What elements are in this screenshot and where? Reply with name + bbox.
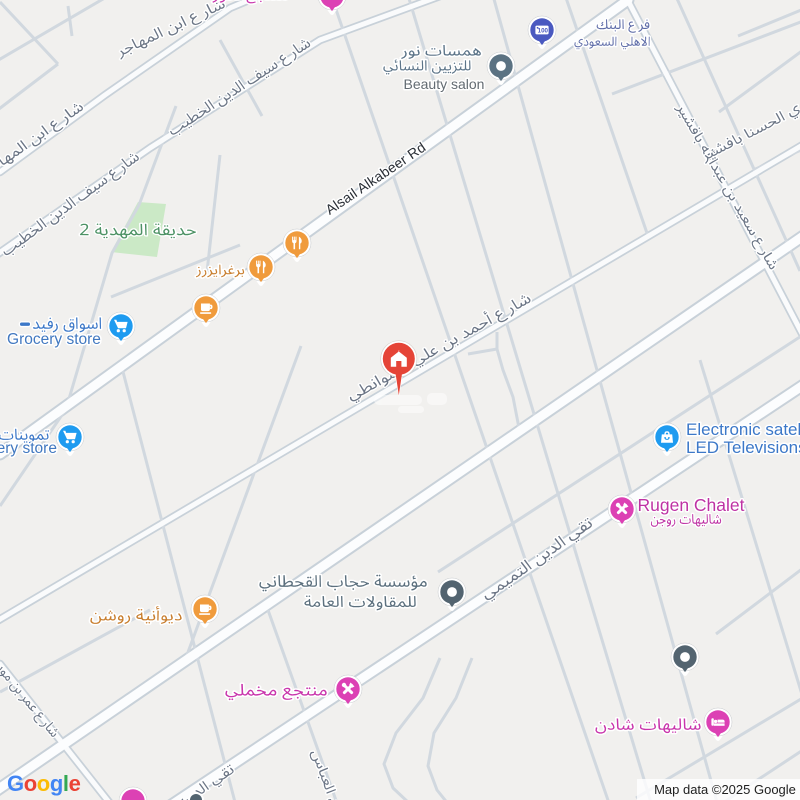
svg-text:Grocery store: Grocery store (7, 331, 101, 348)
svg-text:Map data ©2025 Google: Map data ©2025 Google (654, 782, 796, 797)
svg-text:100: 100 (538, 28, 549, 35)
svg-text:Grocery store: Grocery store (0, 440, 57, 457)
svg-text:Rugen Chalet: Rugen Chalet (637, 495, 744, 515)
svg-text:Google: Google (7, 771, 81, 796)
svg-text:LED Televisions: LED Televisions (686, 438, 800, 457)
svg-text:Beauty salon: Beauty salon (404, 76, 485, 92)
svg-text:Electronic satellite: Electronic satellite (686, 420, 800, 439)
